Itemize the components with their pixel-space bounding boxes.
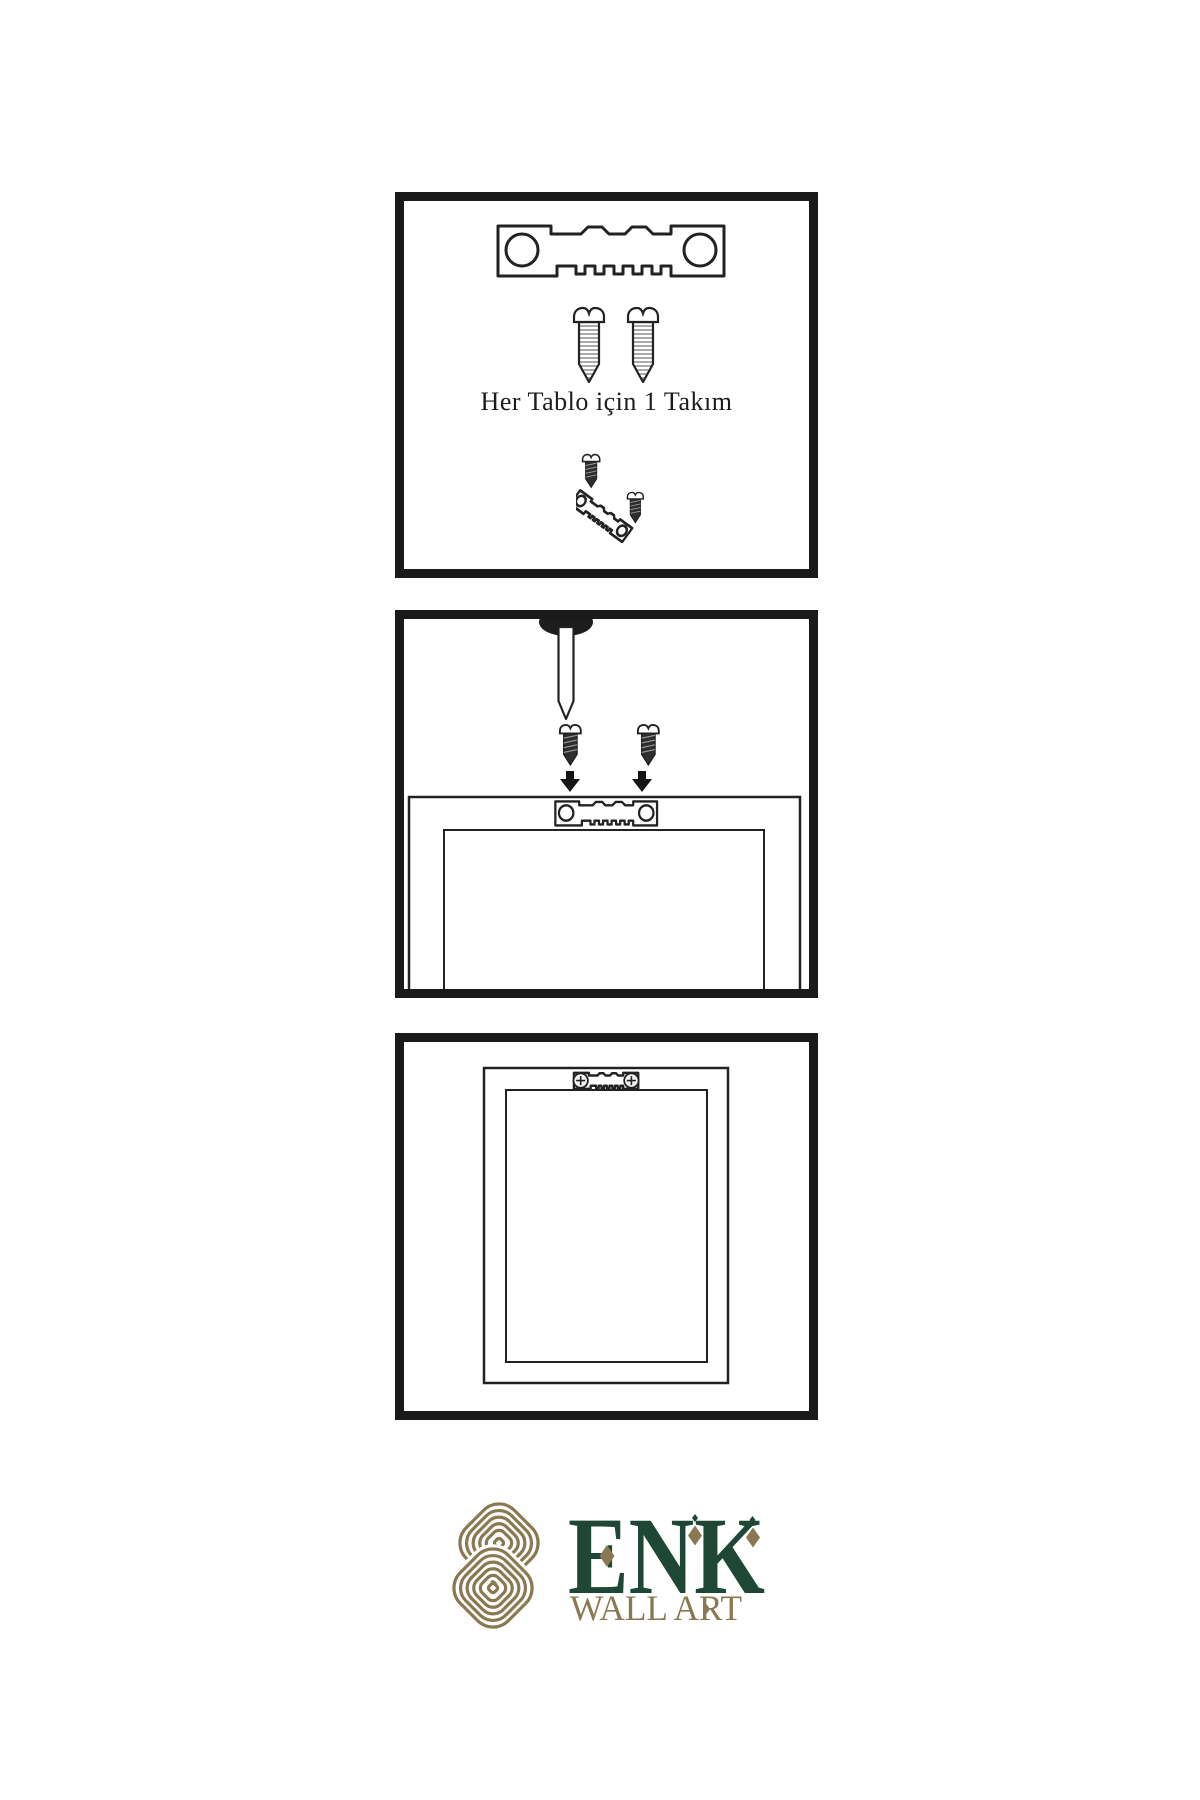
- dark-screw-icon: [638, 725, 659, 765]
- screw-icon: [574, 308, 604, 382]
- down-arrow-icon: [560, 771, 580, 792]
- frame-front-icon: [484, 1068, 728, 1383]
- frame-back-icon: [409, 797, 800, 989]
- phillips-screw-head-icon: [624, 1073, 638, 1087]
- dark-screw-icon: [583, 455, 600, 488]
- sawtooth-hanger-icon: [576, 490, 632, 542]
- nail-icon: [539, 619, 593, 719]
- down-arrow-icon: [632, 771, 652, 792]
- brand-logo: ENK WALL ART: [380, 1488, 880, 1658]
- kit-caption: Her Tablo için 1 Takım: [404, 387, 809, 417]
- mounted-sawtooth-hanger-icon: [574, 1073, 639, 1089]
- step-2-panel: [395, 610, 818, 998]
- phillips-screw-head-icon: [574, 1073, 588, 1087]
- screw-icon: [628, 308, 658, 382]
- step-3-panel: [395, 1033, 818, 1420]
- interlocking-knot-icon: [445, 1495, 547, 1636]
- screw-driving-into-hanger-icon: [576, 451, 664, 549]
- instruction-sheet: Her Tablo için 1 Takım: [0, 0, 1200, 1800]
- step-2-illustration: [404, 619, 809, 989]
- logo-tagline: WALL ART: [570, 1588, 742, 1628]
- step-3-illustration: [404, 1042, 809, 1411]
- screw-pair: [569, 304, 663, 388]
- dark-screw-icon: [627, 492, 643, 522]
- dark-screw-icon: [560, 725, 581, 765]
- sawtooth-hanger-icon: [495, 223, 727, 279]
- step-1-panel: Her Tablo için 1 Takım: [395, 192, 818, 578]
